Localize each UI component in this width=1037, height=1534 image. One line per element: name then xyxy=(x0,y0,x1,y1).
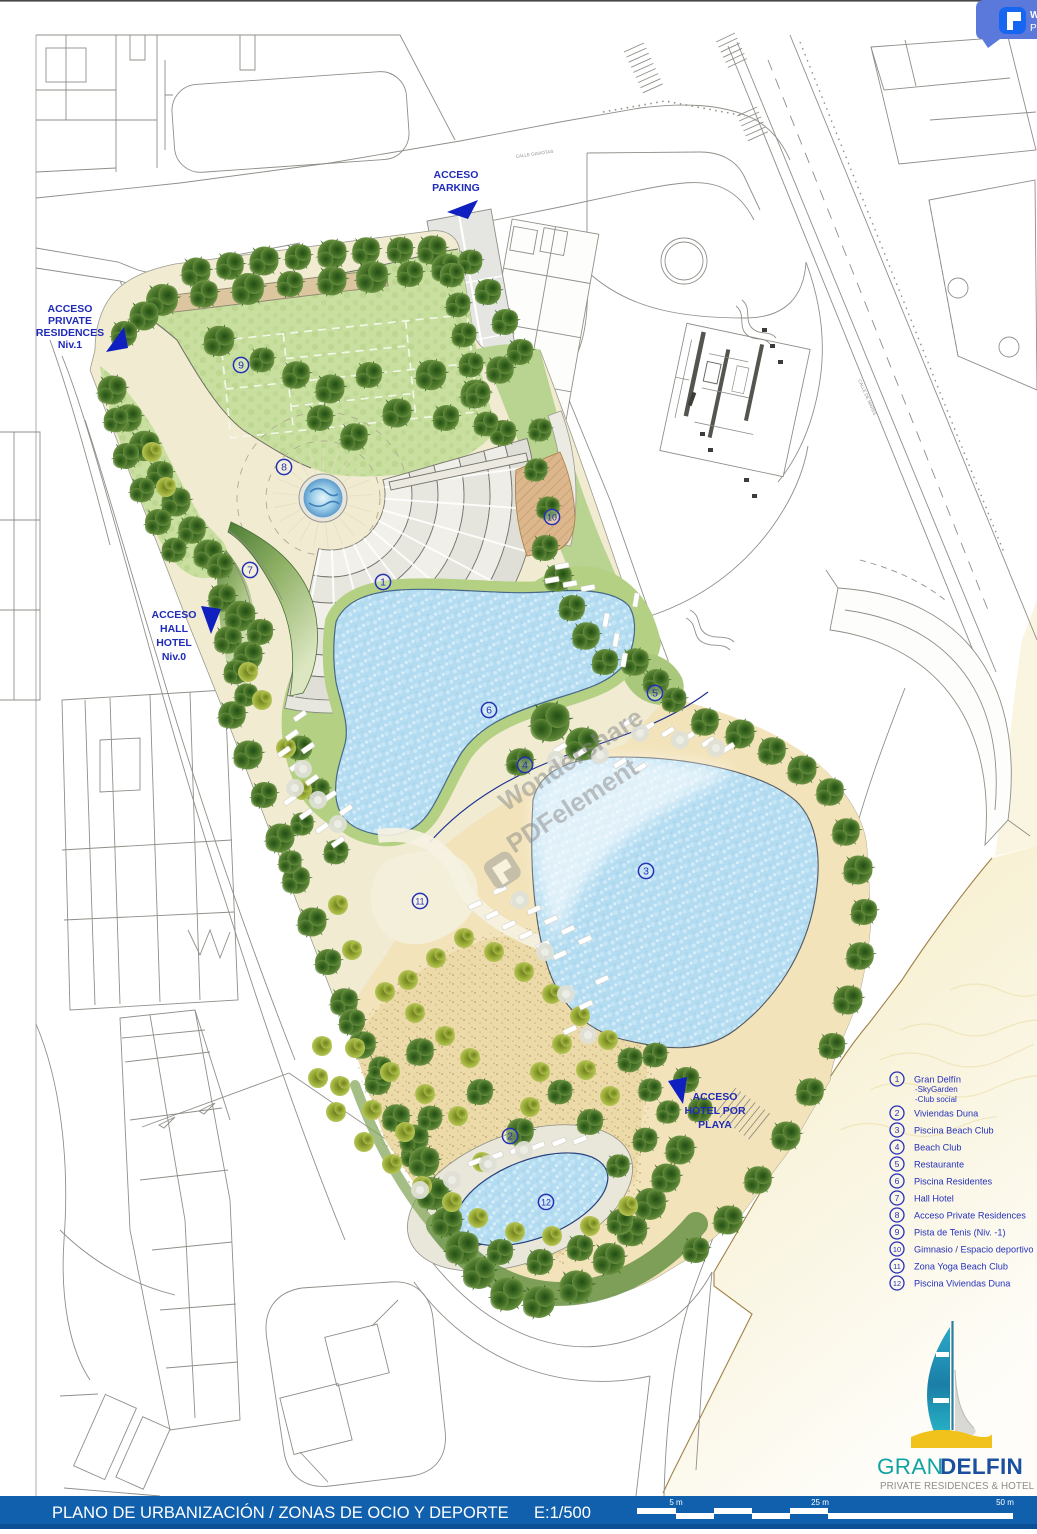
svg-text:Restaurante: Restaurante xyxy=(914,1160,964,1170)
svg-text:Piscina Beach Club: Piscina Beach Club xyxy=(914,1126,994,1136)
svg-text:P: P xyxy=(1030,23,1037,34)
svg-text:Gran Delfín: Gran Delfín xyxy=(914,1075,961,1085)
svg-text:W: W xyxy=(1030,10,1037,21)
svg-text:Piscina Viviendas Duna: Piscina Viviendas Duna xyxy=(914,1279,1011,1289)
svg-text:8: 8 xyxy=(895,1210,900,1220)
svg-text:5 m: 5 m xyxy=(669,1498,683,1507)
svg-text:Hall Hotel: Hall Hotel xyxy=(914,1194,954,1204)
svg-text:3: 3 xyxy=(895,1125,900,1135)
svg-text:50 m: 50 m xyxy=(996,1498,1014,1507)
svg-text:PLAYA: PLAYA xyxy=(698,1119,732,1131)
svg-text:1: 1 xyxy=(895,1074,900,1084)
svg-text:25 m: 25 m xyxy=(811,1498,829,1507)
svg-text:ACCESO: ACCESO xyxy=(152,609,197,621)
svg-text:4: 4 xyxy=(895,1142,900,1152)
svg-text:2: 2 xyxy=(507,1130,513,1142)
svg-text:12: 12 xyxy=(541,1197,551,1207)
svg-text:Niv.0: Niv.0 xyxy=(162,651,186,663)
svg-text:2: 2 xyxy=(895,1108,900,1118)
svg-text:6: 6 xyxy=(486,704,492,716)
svg-text:3: 3 xyxy=(643,865,649,877)
svg-text:Niv.1: Niv.1 xyxy=(58,339,82,351)
svg-text:5: 5 xyxy=(652,687,658,699)
svg-text:10: 10 xyxy=(893,1245,901,1254)
svg-text:10: 10 xyxy=(547,512,557,522)
svg-text:5: 5 xyxy=(895,1159,900,1169)
svg-text:7: 7 xyxy=(247,564,253,576)
svg-text:PARKING: PARKING xyxy=(432,182,480,194)
svg-text:9: 9 xyxy=(238,359,244,371)
svg-text:Viviendas Duna: Viviendas Duna xyxy=(914,1109,979,1119)
svg-text:6: 6 xyxy=(895,1176,900,1186)
svg-text:Acceso Private Residences: Acceso Private Residences xyxy=(914,1211,1026,1221)
svg-text:12: 12 xyxy=(893,1279,901,1288)
svg-text:PRIVATE RESIDENCES & HOTEL: PRIVATE RESIDENCES & HOTEL xyxy=(880,1481,1035,1492)
svg-text:HOTEL: HOTEL xyxy=(156,637,192,649)
svg-text:Piscina Residentes: Piscina Residentes xyxy=(914,1177,993,1187)
svg-text:E:1/500: E:1/500 xyxy=(534,1504,591,1522)
svg-text:ACCESO: ACCESO xyxy=(48,303,93,315)
svg-text:-SkyGarden: -SkyGarden xyxy=(915,1085,958,1094)
svg-text:8: 8 xyxy=(281,461,287,473)
svg-text:PLANO DE URBANIZACIÓN / ZONAS: PLANO DE URBANIZACIÓN / ZONAS DE OCIO Y … xyxy=(52,1503,509,1522)
svg-text:HOTEL POR: HOTEL POR xyxy=(684,1105,745,1117)
svg-text:-Club social: -Club social xyxy=(915,1095,957,1104)
svg-text:9: 9 xyxy=(895,1227,900,1237)
svg-text:RESIDENCES: RESIDENCES xyxy=(36,327,104,339)
svg-text:GRAN: GRAN xyxy=(877,1454,943,1479)
svg-text:Zona Yoga Beach Club: Zona Yoga Beach Club xyxy=(914,1262,1008,1272)
svg-text:11: 11 xyxy=(893,1262,901,1271)
svg-text:1: 1 xyxy=(380,576,386,588)
svg-text:DELFIN: DELFIN xyxy=(940,1454,1023,1479)
svg-text:Beach Club: Beach Club xyxy=(914,1143,962,1153)
svg-text:11: 11 xyxy=(415,896,424,906)
svg-text:Pista de Tenis (Niv. -1): Pista de Tenis (Niv. -1) xyxy=(914,1228,1006,1238)
svg-text:HALL: HALL xyxy=(160,623,189,635)
svg-text:PRIVATE: PRIVATE xyxy=(48,315,92,327)
svg-text:7: 7 xyxy=(895,1193,900,1203)
svg-text:Gimnasio / Espacio deportivo: Gimnasio / Espacio deportivo xyxy=(914,1245,1034,1255)
svg-text:ACCESO: ACCESO xyxy=(693,1091,738,1103)
svg-text:ACCESO: ACCESO xyxy=(434,169,479,181)
